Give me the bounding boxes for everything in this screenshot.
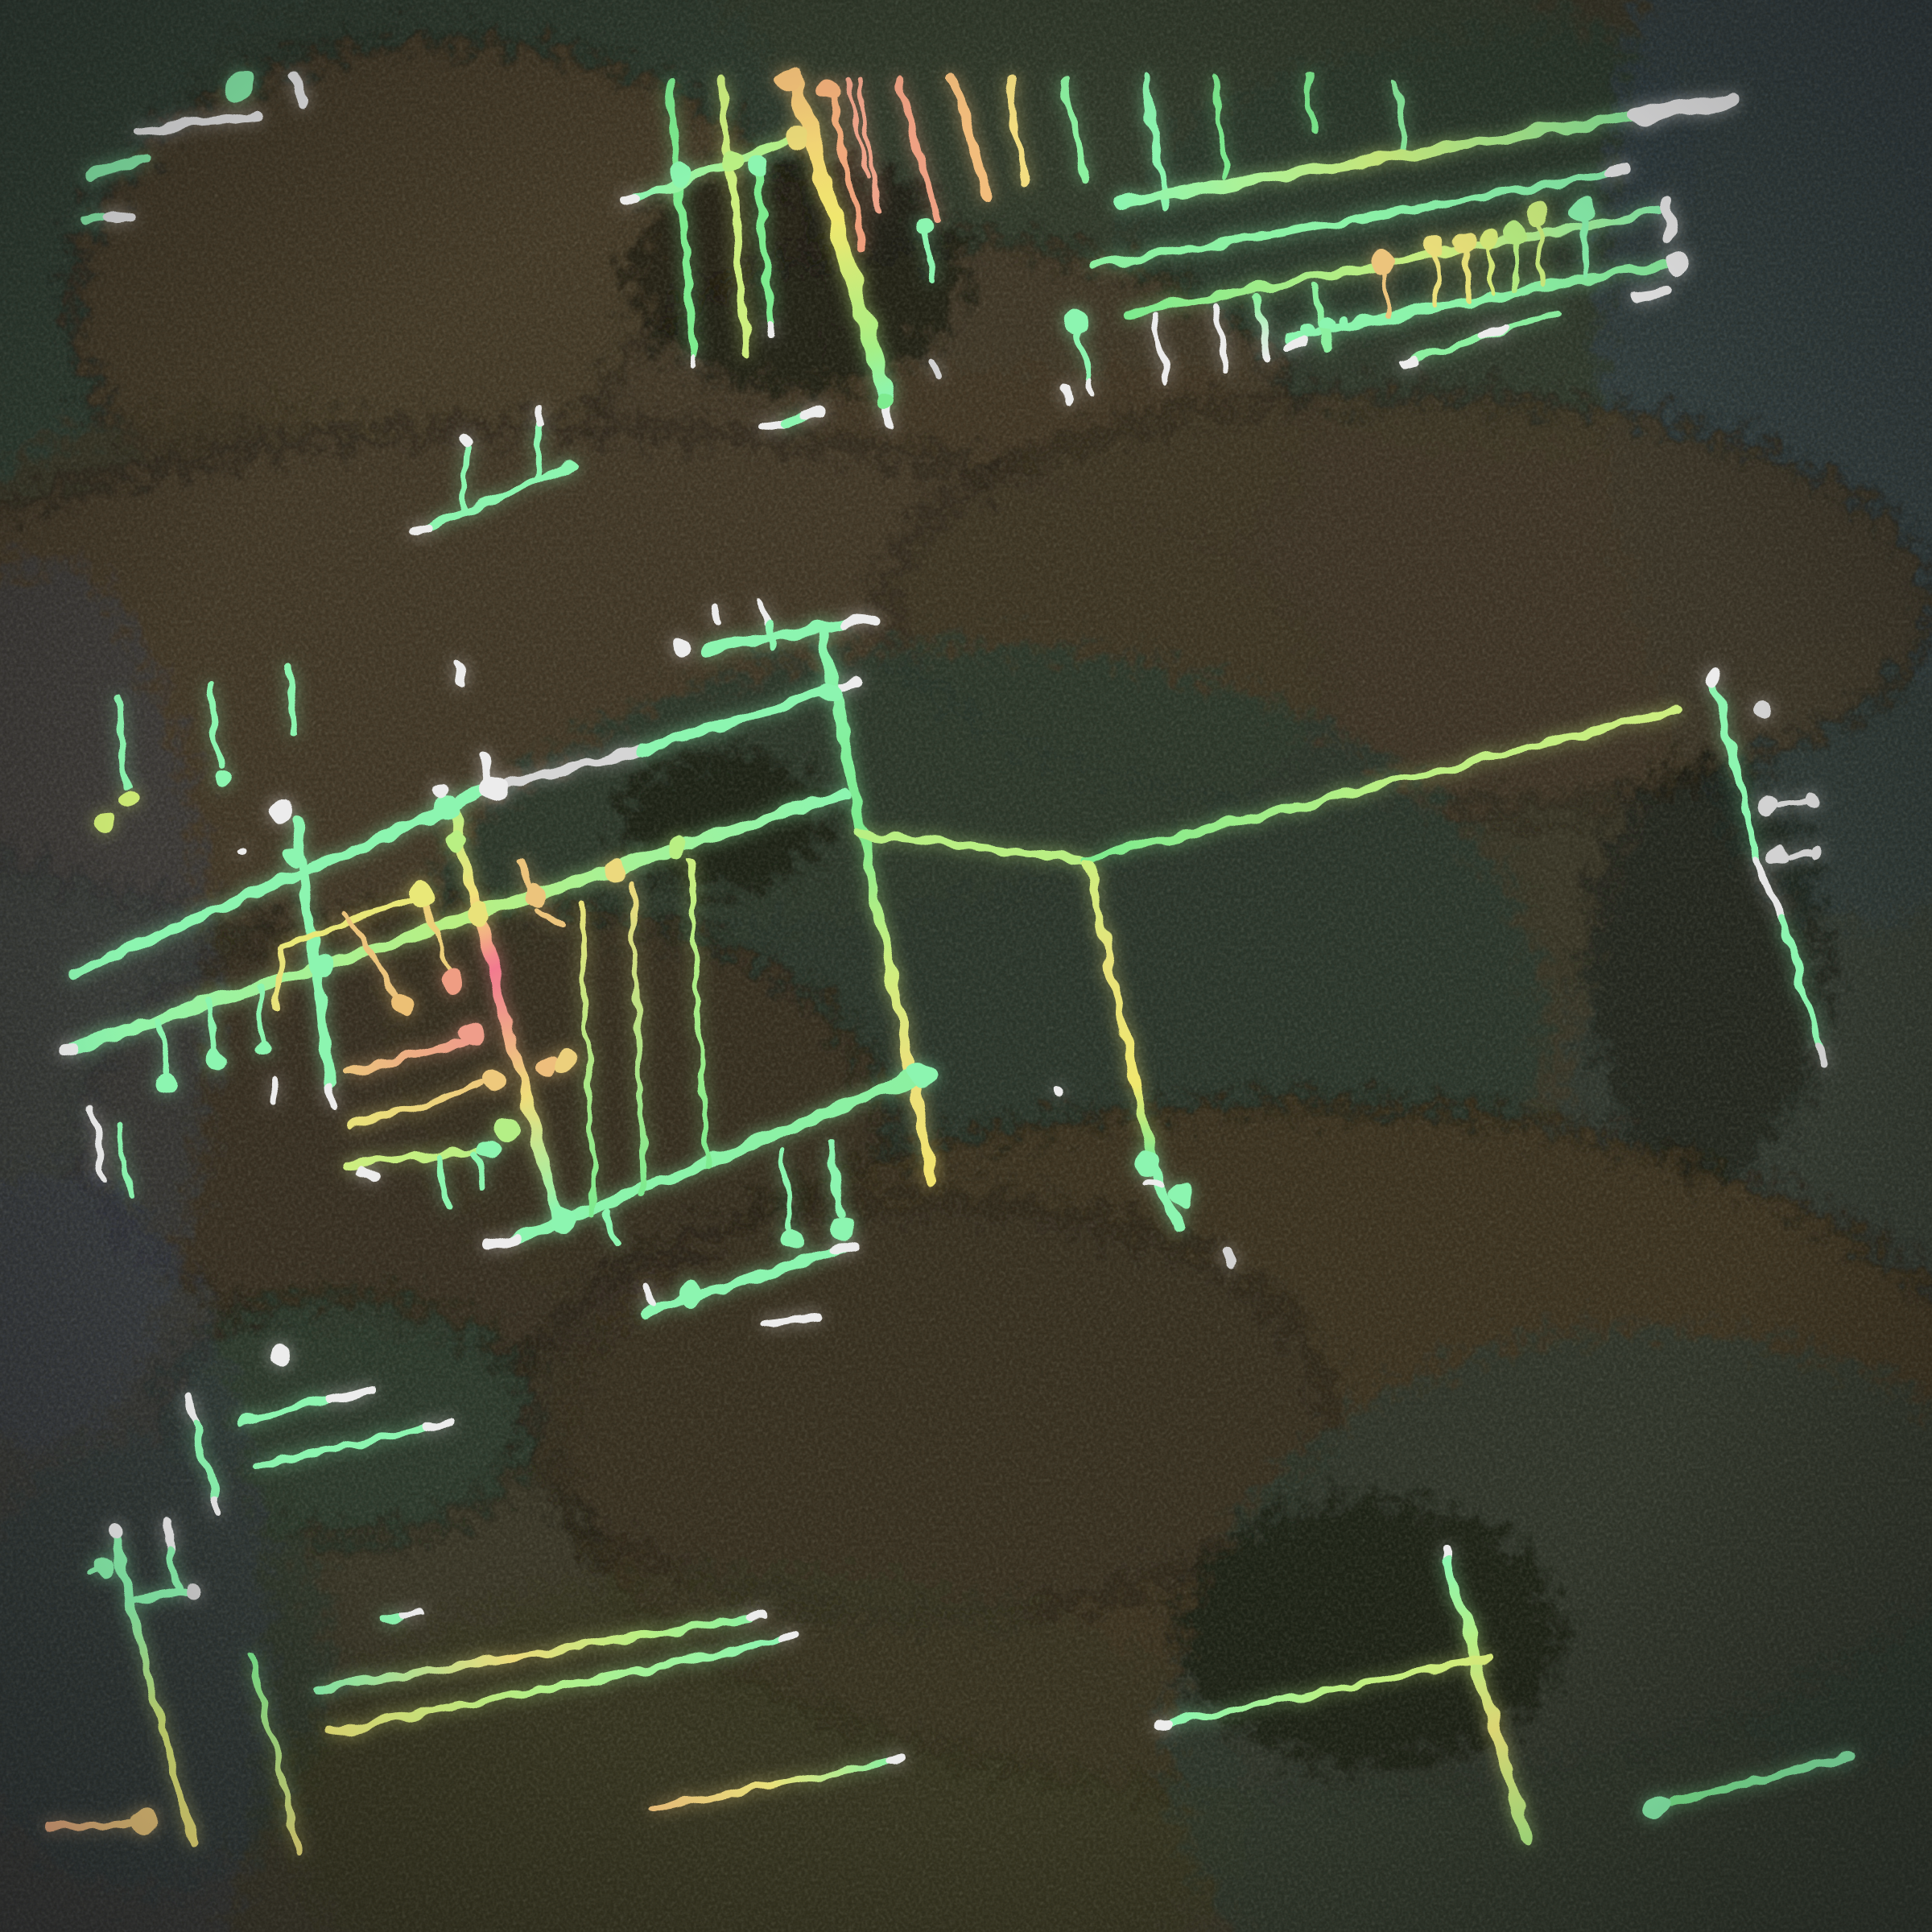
abstract-neon-field-artwork bbox=[0, 0, 1932, 1932]
neon-map-svg bbox=[0, 0, 1932, 1932]
vignette-overlay bbox=[0, 0, 1932, 1932]
